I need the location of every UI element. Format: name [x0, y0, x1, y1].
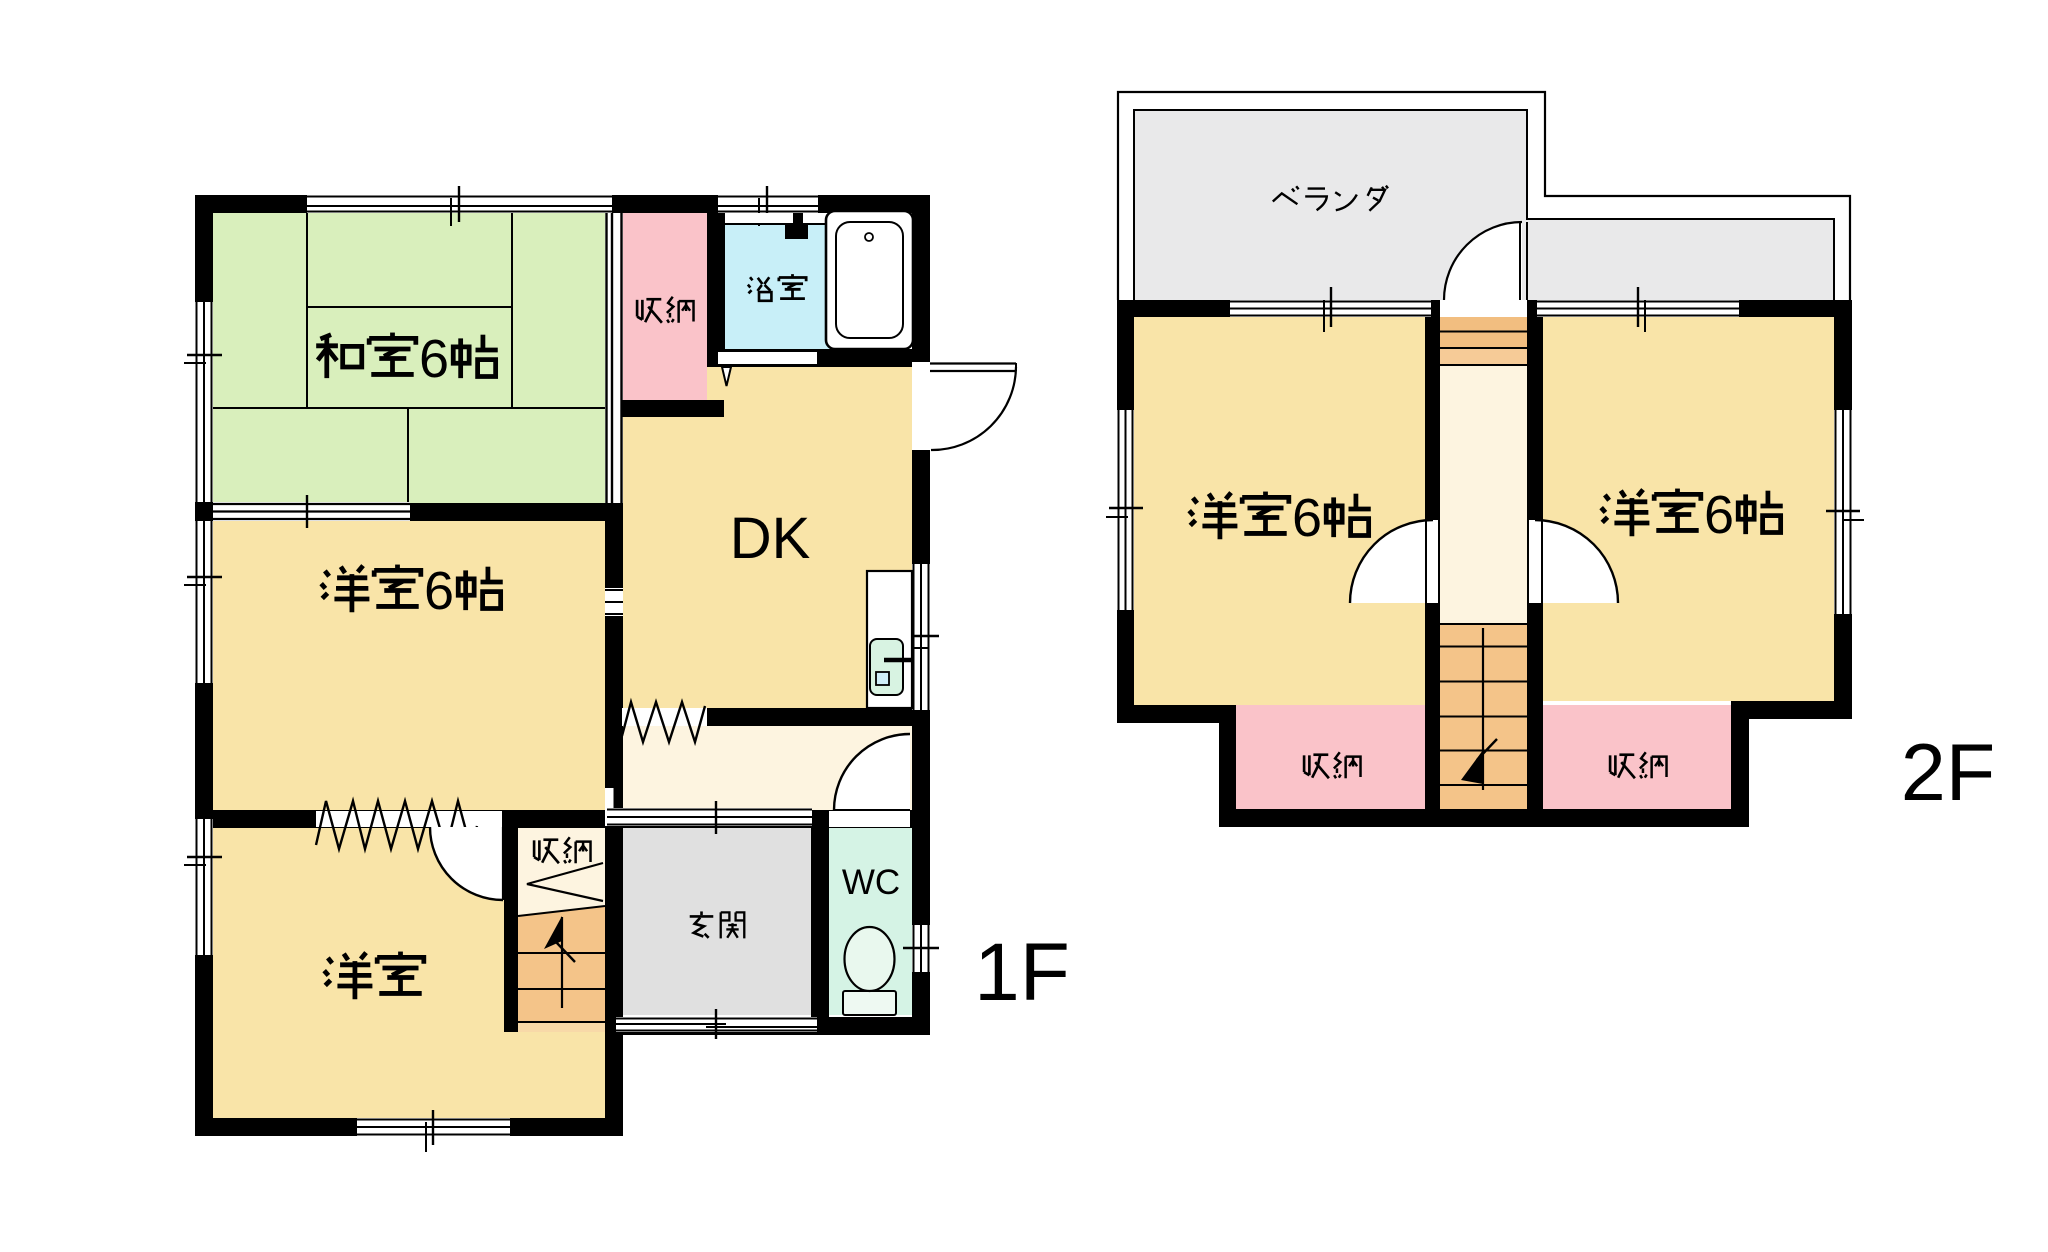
svg-text:2F: 2F	[1901, 728, 1996, 818]
svg-text:6: 6	[424, 561, 454, 621]
svg-text:WC: WC	[842, 863, 900, 902]
svg-text:6: 6	[1704, 485, 1734, 545]
svg-text:6: 6	[1292, 488, 1322, 548]
svg-text:1F: 1F	[974, 927, 1070, 1018]
svg-text:6: 6	[419, 329, 449, 389]
svg-text:DK: DK	[730, 506, 811, 571]
